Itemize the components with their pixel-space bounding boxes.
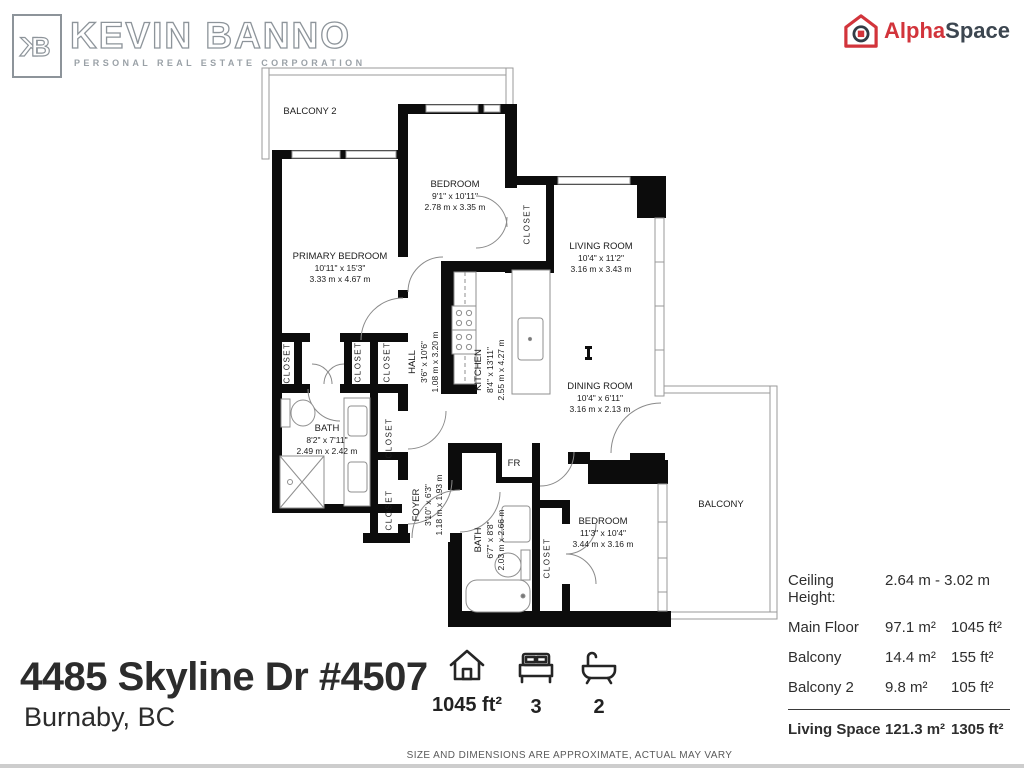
toilet-icon	[281, 399, 290, 427]
bed-icon	[514, 645, 558, 689]
baths-value: 2	[568, 696, 630, 719]
area-table-cell: Balcony	[788, 649, 885, 666]
ceiling-height-row: Ceiling Height: 2.64 m - 3.02 m	[788, 572, 1010, 606]
floorplan-page: K B KEVIN BANNO PERSONAL REAL ESTATE COR…	[0, 0, 1024, 768]
area-table-cell: 9.8 m²	[885, 679, 951, 696]
city-line: Burnaby, BC	[24, 702, 428, 733]
stove-icon	[452, 306, 476, 330]
area-table: Ceiling Height: 2.64 m - 3.02 m Main Flo…	[788, 572, 1010, 751]
living-space-row: Living Space 121.3 m² 1305 ft²	[788, 721, 1010, 738]
living-space-metric: 121.3 m²	[885, 721, 951, 738]
area-table-cell: 105 ft²	[951, 679, 1010, 696]
bathtub-fixture-icon	[466, 580, 530, 612]
area-table-row: Main Floor97.1 m²1045 ft²	[788, 619, 1010, 636]
stat-baths: 2	[568, 645, 630, 719]
bathtub-icon	[577, 645, 621, 689]
area-value: 1045 ft²	[426, 694, 508, 717]
area-table-cell: Main Floor	[788, 619, 885, 636]
area-table-cell: 155 ft²	[951, 649, 1010, 666]
area-table-cell: 14.4 m²	[885, 649, 951, 666]
address-line: 4485 Skyline Dr #4507	[20, 655, 428, 700]
disclaimer-text: SIZE AND DIMENSIONS ARE APPROXIMATE, ACT…	[115, 750, 1024, 761]
fixtures	[280, 270, 550, 612]
living-space-imperial: 1305 ft²	[951, 721, 1010, 738]
stat-beds: 3	[505, 645, 567, 719]
listing-address: 4485 Skyline Dr #4507 Burnaby, BC	[20, 655, 428, 733]
house-icon	[445, 643, 489, 687]
bath-sink-icon	[348, 406, 367, 436]
beds-value: 3	[505, 696, 567, 719]
area-table-row: Balcony 29.8 m²105 ft²	[788, 679, 1010, 696]
stat-area: 1045 ft²	[426, 643, 508, 717]
area-table-cell: 1045 ft²	[951, 619, 1010, 636]
bath2-sink-icon	[502, 506, 530, 542]
table-divider	[788, 709, 1010, 710]
toilet2-icon	[521, 550, 530, 580]
bottom-bar	[0, 764, 1024, 768]
area-table-cell: 97.1 m²	[885, 619, 951, 636]
living-space-label: Living Space	[788, 721, 885, 738]
area-table-row: Balcony14.4 m²155 ft²	[788, 649, 1010, 666]
area-table-rows: Main Floor97.1 m²1045 ft²Balcony14.4 m²1…	[788, 619, 1010, 696]
area-table-cell: Balcony 2	[788, 679, 885, 696]
ceiling-height-value: 2.64 m - 3.02 m	[885, 572, 990, 606]
ceiling-height-label: Ceiling Height:	[788, 572, 885, 606]
